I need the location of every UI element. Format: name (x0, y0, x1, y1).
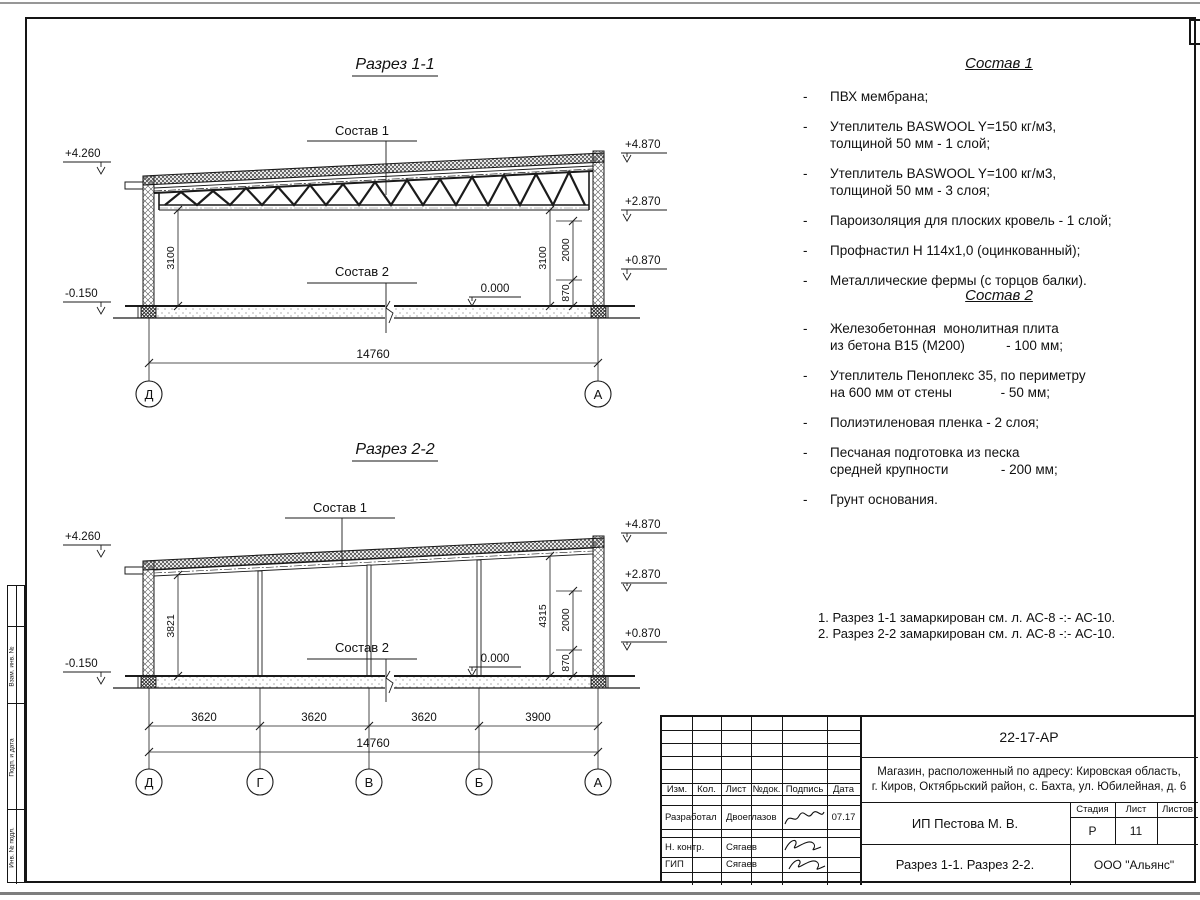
svg-text:3821: 3821 (165, 614, 177, 638)
svg-text:14760: 14760 (356, 736, 390, 750)
top-right-inventory-box (1189, 19, 1200, 45)
list-item: -Железобетонная монолитная плита из бето… (803, 320, 1195, 354)
scan-line-bottom (0, 892, 1200, 895)
scan-line-top (0, 2, 1200, 4)
notes: 1. Разрез 1-1 замаркирован см. л. АС-8 -… (818, 610, 1188, 642)
svg-text:3620: 3620 (411, 712, 437, 724)
list-item: -ПВХ мембрана; (803, 88, 1195, 105)
date-razrabotal: 07.17 (827, 805, 860, 829)
svg-text:3900: 3900 (525, 712, 551, 724)
section2-axis-dimension: 3620 3620 3620 3900 14760 Д Г В Б А (136, 688, 611, 795)
svg-text:+4.870: +4.870 (625, 519, 661, 531)
section2-elevations-left: +4.260 -0.150 (63, 531, 111, 684)
axis-bubble-label: В (365, 775, 374, 790)
section1-zero-level-mark: 0.000 (468, 283, 521, 306)
svg-text:+4.870: +4.870 (625, 139, 661, 151)
sheets-total (1157, 817, 1198, 844)
svg-text:870: 870 (560, 654, 572, 672)
composition2-title: Состав 2 (803, 287, 1195, 304)
composition1-list: Состав 1 -ПВХ мембрана; -Утеплитель BASW… (803, 55, 1195, 302)
section1-title: Разрез 1-1 (355, 56, 434, 73)
svg-text:3100: 3100 (165, 246, 177, 270)
svg-text:0.000: 0.000 (481, 283, 510, 295)
section1-elevations-right: +4.870 +2.870 +0.870 (621, 139, 667, 280)
section2-elevations-right: +4.870 +2.870 +0.870 (621, 519, 667, 650)
name-gip: Сягаев (723, 857, 782, 872)
svg-text:+4.260: +4.260 (65, 148, 101, 160)
col-header-izm: Изм. (662, 783, 692, 795)
note-line: 1. Разрез 1-1 замаркирован см. л. АС-8 -… (818, 610, 1188, 626)
list-item: -Песчаная подготовка из песка средней кр… (803, 444, 1195, 478)
section1-axis-dimension: 14760 Д А (136, 318, 611, 407)
list-item: -Утеплитель BASWOOL Y=100 кг/м3, толщино… (803, 165, 1195, 199)
list-item: -Утеплитель BASWOOL Y=150 кг/м3, толщино… (803, 118, 1195, 152)
section-1-1-drawing: Разрез 1-1 (55, 45, 670, 430)
svg-text:-0.150: -0.150 (65, 658, 98, 670)
doc-code: 22-17-АР (860, 717, 1198, 757)
section-2-2-drawing: Разрез 2-2 Состав 1 (55, 430, 670, 820)
svg-text:Состав 1: Состав 1 (313, 500, 367, 515)
axis-bubble-label: Б (475, 775, 484, 790)
company-name: ООО "Альянс" (1070, 844, 1198, 885)
role-nkontr: Н. контр. (662, 837, 721, 857)
svg-text:3620: 3620 (301, 712, 327, 724)
section1-dimensions: 3100 3100 2000 870 (165, 206, 582, 310)
section1-elevations-left: +4.260 -0.150 (63, 148, 111, 314)
drawing-sheet: Разрез 1-1 (0, 0, 1200, 900)
svg-text:Состав 2: Состав 2 (335, 264, 389, 279)
strip-label-podp: Подп. и дата (9, 710, 16, 806)
list-item: -Полиэтиленовая пленка - 2 слоя; (803, 414, 1195, 431)
section2-zero-level-mark: 0.000 (468, 653, 521, 676)
signature-icon (783, 807, 826, 828)
composition2-list: Состав 2 -Железобетонная монолитная плит… (803, 287, 1195, 521)
title-block: 22-17-АР Магазин, расположенный по адрес… (660, 715, 1196, 883)
svg-text:0.000: 0.000 (481, 653, 510, 665)
col-header-ndok: №док. (751, 783, 782, 795)
sheet-title: Разрез 1-1. Разрез 2-2. (860, 844, 1070, 885)
role-gip: ГИП (662, 857, 721, 872)
axis-bubble-label: А (594, 387, 603, 402)
col-header-podpis: Подпись (782, 783, 827, 795)
svg-text:+0.870: +0.870 (625, 628, 661, 640)
svg-text:2000: 2000 (560, 608, 572, 632)
role-razrabotal: Разработал (662, 805, 721, 829)
sheets-label: Листов (1157, 802, 1198, 817)
sheet-label: Лист (1115, 802, 1157, 817)
list-item: -Пароизоляция для плоских кровель - 1 сл… (803, 212, 1195, 229)
svg-text:+2.870: +2.870 (625, 569, 661, 581)
svg-text:3100: 3100 (537, 246, 549, 270)
strip-label-inv: Инв. № подл. (9, 812, 16, 884)
list-item: -Грунт основания. (803, 491, 1195, 508)
axis-bubble-label: А (594, 775, 603, 790)
col-header-data: Дата (827, 783, 860, 795)
strip-label-vzam: Взам. инв. № (9, 639, 16, 695)
svg-text:3620: 3620 (191, 712, 217, 724)
signature-icon (781, 835, 828, 877)
svg-text:Состав 2: Состав 2 (335, 640, 389, 655)
stage-label: Стадия (1070, 802, 1115, 817)
section2-title: Разрез 2-2 (355, 441, 434, 458)
svg-text:+4.260: +4.260 (65, 531, 101, 543)
name-nkontr: Сягаев (723, 837, 782, 857)
axis-bubble-label: Г (256, 775, 263, 790)
col-header-kol: Кол. (692, 783, 721, 795)
svg-text:+0.870: +0.870 (625, 255, 661, 267)
composition1-title: Состав 1 (803, 55, 1195, 72)
axis-bubble-label: Д (145, 775, 154, 790)
section2-sostav2-callout: Состав 2 (307, 640, 417, 702)
axis-bubble-label: Д (145, 387, 154, 402)
name-razrabotal: Двоеглазов (723, 805, 782, 829)
client-name: ИП Пестова М. В. (860, 802, 1070, 844)
side-stamp-strip: Взам. инв. № Подп. и дата Инв. № подл. (7, 585, 25, 883)
section1-sostav2-callout: Состав 2 (307, 264, 417, 333)
svg-text:4315: 4315 (537, 604, 549, 628)
sheet-number: 11 (1115, 817, 1157, 844)
list-item: -Профнастил Н 114х1,0 (оцинкованный); (803, 242, 1195, 259)
svg-text:870: 870 (560, 284, 572, 302)
stage-value: Р (1070, 817, 1115, 844)
col-header-list: Лист (721, 783, 751, 795)
svg-text:Состав 1: Состав 1 (335, 123, 389, 138)
svg-text:-0.150: -0.150 (65, 288, 98, 300)
svg-text:2000: 2000 (560, 238, 572, 262)
svg-text:14760: 14760 (356, 347, 390, 361)
project-address: Магазин, расположенный по адресу: Кировс… (864, 757, 1194, 802)
note-line: 2. Разрез 2-2 замаркирован см. л. АС-8 -… (818, 626, 1188, 642)
svg-text:+2.870: +2.870 (625, 196, 661, 208)
list-item: -Утеплитель Пеноплекс 35, по периметру н… (803, 367, 1195, 401)
